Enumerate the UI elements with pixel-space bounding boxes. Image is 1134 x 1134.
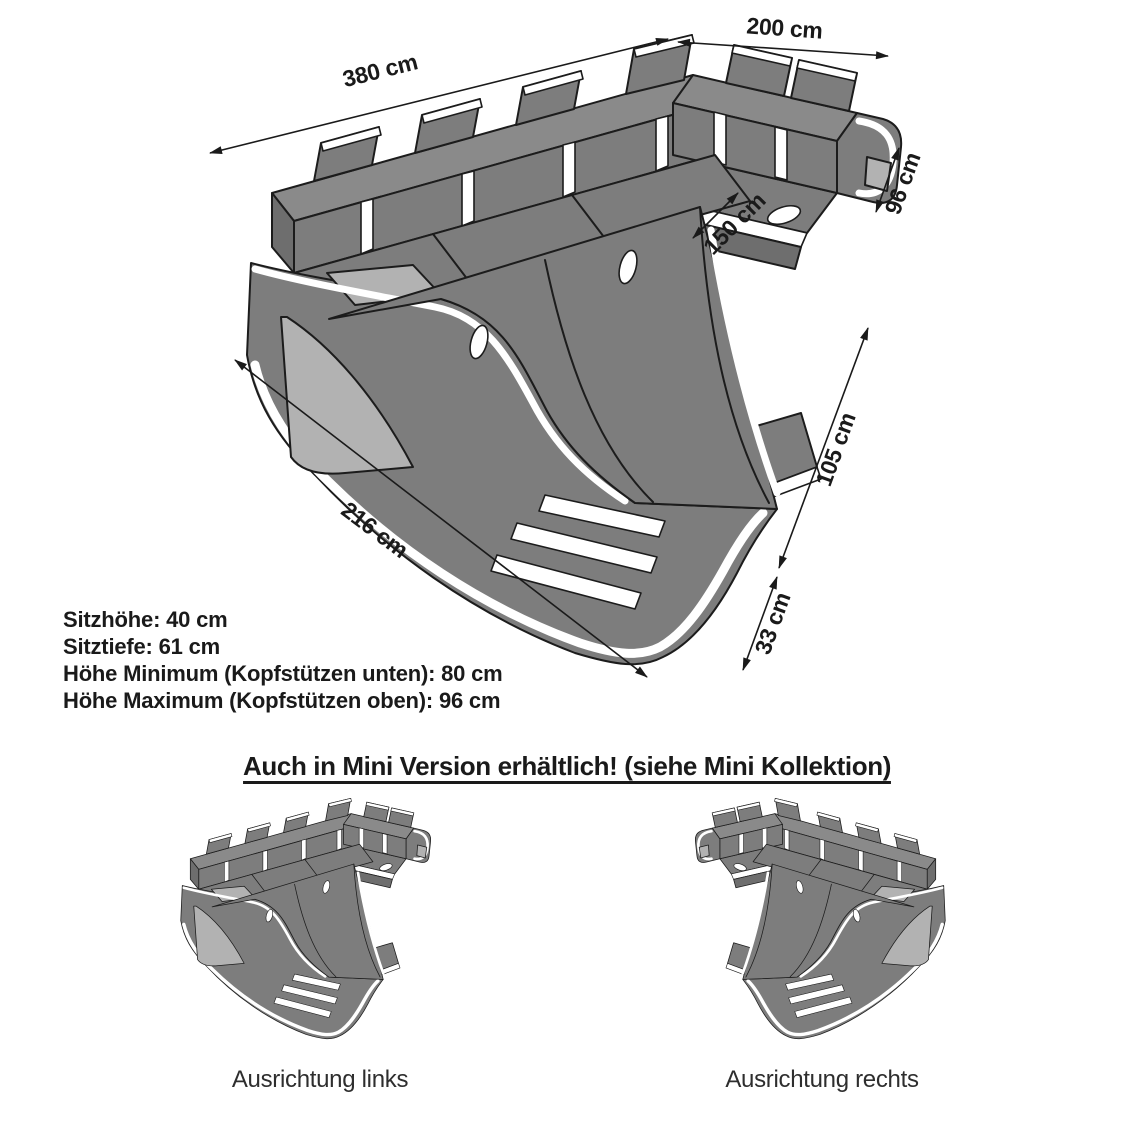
spec-seat-depth: Sitztiefe: 61 cm (63, 633, 503, 660)
dim-label-105: 105 cm (810, 409, 861, 490)
mini-version-heading: Auch in Mini Version erhältlich! (siehe … (0, 751, 1134, 782)
dim-label-33: 33 cm (749, 589, 795, 658)
spec-height-min: Höhe Minimum (Kopfstützen unten): 80 cm (63, 660, 503, 687)
variant-label-rechts: Ausrichtung rechts (662, 1066, 982, 1094)
spec-seat-height: Sitzhöhe: 40 cm (63, 606, 503, 633)
spec-height-max: Höhe Maximum (Kopfstützen oben): 96 cm (63, 687, 503, 714)
dim-line-200 (678, 42, 888, 56)
dim-label-200: 200 cm (746, 12, 824, 43)
mini-sofa-links (181, 798, 431, 1038)
dim-label-380: 380 cm (340, 48, 420, 92)
main-sofa-illustration (247, 35, 901, 664)
spec-text-block: Sitzhöhe: 40 cm Sitztiefe: 61 cm Höhe Mi… (63, 606, 503, 714)
variant-label-links: Ausrichtung links (160, 1066, 480, 1094)
sofa-dimension-sheet: 380 cm 200 cm 96 cm 150 cm 105 cm 33 cm … (0, 0, 1134, 1134)
mini-sofa-rechts (695, 798, 945, 1038)
diagram-canvas: 380 cm 200 cm 96 cm 150 cm 105 cm 33 cm … (0, 0, 1134, 1134)
